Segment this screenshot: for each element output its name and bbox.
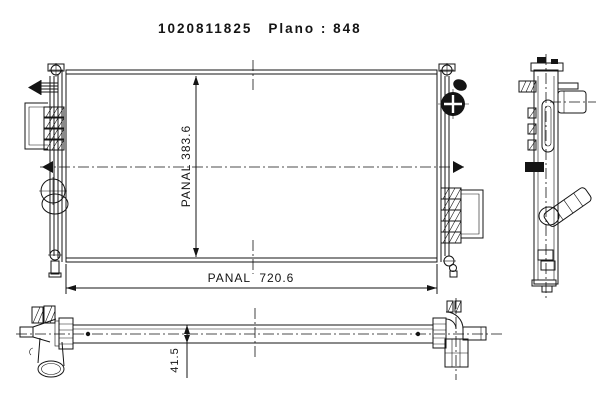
bottom-right-flange: [433, 318, 446, 348]
width-dimension-label: PANAL 720.6: [208, 271, 295, 285]
height-dimension-label: PANAL 383.6: [179, 125, 193, 207]
mounting-bracket-right: [461, 190, 483, 238]
centerline-right-arrow-icon: [453, 161, 464, 173]
bottom-view-drawing: [16, 298, 502, 380]
height-dimension: [193, 76, 199, 257]
radiator-drawing: [0, 0, 600, 400]
mounting-bracket-left: [25, 103, 48, 149]
side-view-drawing: [519, 54, 596, 300]
side-inlet-pipe: [519, 81, 536, 92]
side-left-brackets: [525, 108, 544, 172]
thickness-dimension: [184, 325, 190, 378]
bolt-icon-top-left: [49, 63, 63, 77]
diagonal-hose: [539, 186, 593, 228]
rib-block-right: [441, 188, 461, 243]
centerline-left-arrow-icon: [42, 161, 53, 173]
bottom-right-box: [445, 339, 468, 367]
thickness-dimension-label: 41.5: [169, 347, 181, 372]
side-bottom-fittings: [532, 250, 556, 292]
bottom-left-flange: [55, 318, 73, 349]
drain-plug-right-icon: [443, 256, 457, 277]
side-top-cap: [531, 57, 563, 71]
front-view-drawing: [25, 60, 483, 294]
filler-cap-icon: [438, 77, 469, 119]
horizontal-centerline: [40, 161, 464, 173]
bottom-right-pipe: [463, 327, 486, 340]
drain-plug-left-icon: [48, 250, 62, 277]
filler-neck: [550, 83, 596, 113]
oblong-slot: [542, 100, 554, 152]
technical-drawing-canvas: 1020811825 Plano : 848: [0, 0, 600, 400]
bolt-icon-top-right: [440, 63, 454, 77]
